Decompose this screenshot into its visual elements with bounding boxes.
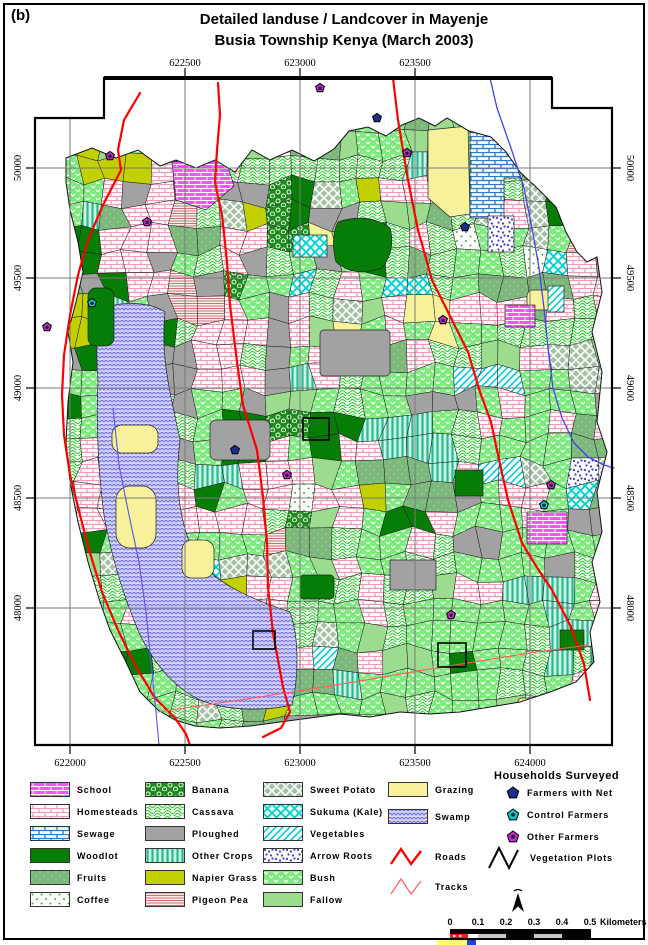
landuse-parcel	[596, 133, 617, 156]
landuse-parcel	[240, 128, 270, 158]
landuse-parcel	[57, 719, 81, 739]
landuse-parcel	[496, 668, 525, 700]
landuse-parcel	[80, 667, 101, 692]
landuse-map: 622500 623000 623500 622000 622500 62300…	[0, 0, 648, 945]
landuse-parcel	[55, 368, 82, 397]
landuse-parcel	[431, 620, 451, 653]
household-marker-center	[285, 474, 288, 477]
landuse-parcel	[127, 719, 153, 739]
landuse-parcel	[592, 533, 613, 559]
landuse-parcel	[54, 647, 79, 667]
landuse-parcel	[54, 418, 81, 439]
ploughed-area	[320, 330, 390, 376]
axis-label-right: 50000	[624, 155, 635, 181]
landuse-parcel	[74, 652, 99, 676]
landuse-parcel	[285, 106, 311, 136]
landuse-parcel	[267, 110, 285, 129]
school-area	[527, 512, 567, 544]
figure-label: (b)	[11, 7, 30, 24]
axis-label-bottom: 622500	[169, 758, 201, 769]
landuse-parcel	[27, 555, 55, 578]
household-marker-center	[549, 484, 552, 487]
household-marker-center	[441, 319, 444, 322]
grazing-patch	[116, 486, 156, 548]
landuse-parcel	[216, 134, 243, 158]
woodlot-area	[300, 575, 334, 599]
landuse-parcel	[546, 177, 577, 203]
landuse-parcel	[450, 670, 478, 700]
ploughed-area	[390, 560, 436, 590]
landuse-parcel	[149, 716, 174, 745]
landuse-parcel	[28, 365, 56, 394]
axis-label-bottom: 624000	[514, 758, 546, 769]
landuse-parcel	[525, 624, 551, 651]
landuse-parcel	[310, 182, 342, 209]
landuse-parcel	[546, 201, 577, 225]
landuse-parcel	[288, 457, 315, 484]
landuse-parcel	[357, 651, 383, 675]
axis-label-right: 48000	[624, 595, 635, 621]
landuse-parcel	[356, 178, 381, 202]
landuse-parcel	[546, 318, 575, 345]
landuse-parcel	[27, 319, 57, 348]
landuse-parcel	[30, 620, 55, 648]
landuse-parcel	[568, 129, 596, 158]
landuse-parcel	[595, 203, 622, 226]
landuse-parcel	[51, 506, 77, 535]
axis-label-top: 623500	[399, 58, 431, 69]
landuse-parcel	[567, 181, 600, 206]
landuse-parcel	[589, 601, 622, 630]
landuse-parcel	[591, 621, 622, 647]
landuse-parcel	[591, 667, 619, 698]
vegetables-area	[548, 286, 564, 312]
landuse-parcel	[596, 557, 622, 583]
household-marker-center	[405, 152, 408, 155]
landuse-parcel	[28, 201, 58, 231]
landuse-parcel	[566, 223, 595, 253]
ploughed-area	[210, 420, 270, 460]
landuse-parcel	[28, 390, 55, 419]
axis-label-left: 49500	[13, 265, 24, 291]
landuse-parcel	[78, 600, 104, 623]
landuse-parcel	[403, 294, 435, 323]
landuse-parcel	[238, 721, 272, 744]
landuse-parcel	[333, 299, 363, 325]
landuse-parcel	[101, 691, 128, 721]
landuse-parcel	[593, 295, 621, 322]
axis-label-left: 49000	[13, 375, 24, 401]
landuse-parcel	[29, 152, 60, 175]
landuse-parcel	[339, 713, 359, 747]
landuse-parcel	[571, 105, 598, 134]
landuse-parcel	[309, 434, 342, 462]
axis-label-left: 48000	[13, 595, 24, 621]
landuse-parcel	[74, 620, 103, 652]
landuse-parcel	[313, 669, 335, 695]
landuse-parcel	[267, 128, 291, 158]
axis-label-bottom: 623000	[284, 758, 316, 769]
landuse-parcel	[378, 437, 406, 460]
landuse-parcel	[480, 714, 500, 747]
landuse-parcel	[596, 153, 618, 184]
landuse-parcel	[28, 416, 56, 439]
household-marker-net	[373, 113, 382, 121]
landuse-parcel	[548, 109, 571, 136]
landuse-parcel	[75, 691, 103, 724]
landuse-parcel	[28, 269, 58, 297]
landuse-parcel	[482, 340, 498, 369]
landuse-parcel	[548, 129, 571, 161]
household-marker-center	[449, 614, 452, 617]
landuse-parcel	[148, 130, 177, 158]
landuse-parcel	[240, 110, 267, 136]
landuse-parcel	[98, 651, 128, 675]
landuse-parcel	[425, 481, 458, 512]
landuse-parcel	[358, 573, 384, 602]
landuse-parcel	[520, 345, 552, 371]
grazing-patch	[182, 540, 214, 578]
landuse-parcel	[546, 697, 571, 723]
landuse-parcel	[591, 690, 621, 722]
landuse-parcel	[51, 575, 82, 600]
landuse-parcel	[544, 675, 573, 699]
landuse-parcel	[566, 252, 597, 277]
landuse-parcel	[310, 106, 341, 136]
landuse-parcel	[56, 128, 78, 157]
axis-label-left: 48500	[13, 485, 24, 511]
landuse-parcel	[498, 714, 528, 742]
landuse-parcel	[576, 202, 600, 225]
landuse-parcel	[197, 719, 222, 741]
landuse-parcel	[453, 249, 481, 278]
woodlot-area	[333, 218, 391, 272]
landuse-parcel	[591, 319, 622, 345]
landuse-parcel	[473, 648, 502, 670]
landuse-parcel	[36, 717, 61, 743]
landuse-parcel	[27, 535, 55, 557]
landuse-parcel	[522, 154, 553, 181]
landuse-parcel	[58, 251, 77, 277]
woodlot-area	[88, 288, 114, 346]
landuse-parcel	[433, 362, 455, 395]
landuse-parcel	[244, 318, 269, 346]
landuse-parcel	[51, 553, 82, 577]
landuse-parcel	[428, 106, 454, 131]
grazing-patch	[518, 698, 544, 710]
household-marker-center	[318, 87, 321, 90]
landuse-parcel	[239, 462, 269, 490]
landuse-parcel	[30, 600, 56, 621]
household-marker-center	[542, 504, 545, 507]
landuse-parcel	[595, 223, 623, 252]
landuse-parcel	[313, 713, 342, 746]
axis-label-top: 623000	[284, 58, 316, 69]
landuse-parcel	[498, 648, 527, 670]
landuse-parcel	[51, 600, 83, 621]
landuse-parcel	[222, 110, 245, 136]
landuse-parcel	[173, 130, 196, 158]
household-marker-center	[90, 302, 93, 305]
landuse-parcel	[309, 528, 332, 560]
landuse-parcel	[265, 346, 291, 371]
landuse-parcel	[593, 716, 621, 743]
landuse-parcel	[34, 438, 57, 461]
household-marker-center	[145, 221, 148, 224]
landuse-parcel	[125, 135, 152, 154]
landuse-parcel	[28, 346, 57, 368]
landuse-parcel	[410, 723, 430, 742]
landuse-parcel	[570, 697, 596, 723]
landuse-parcel	[355, 460, 385, 485]
landuse-parcel	[54, 107, 78, 134]
household-marker-center	[108, 155, 111, 158]
landuse-parcel	[567, 153, 597, 184]
landuse-parcel	[99, 675, 129, 690]
landuse-parcel	[568, 366, 599, 394]
landuse-parcel	[99, 719, 128, 741]
landuse-parcel	[75, 721, 103, 741]
landuse-parcel	[451, 715, 481, 747]
household-marker-center	[45, 326, 48, 329]
axis-label-right: 48500	[624, 485, 635, 511]
landuse-parcel	[382, 277, 408, 297]
landuse-parcel	[496, 106, 522, 137]
landuse-parcel	[596, 105, 621, 134]
landuse-parcel	[355, 714, 386, 747]
landuse-parcel	[147, 108, 173, 135]
landuse-parcel	[27, 297, 57, 323]
sukuma-area	[293, 235, 327, 257]
landuse-parcel	[33, 457, 61, 488]
woodlot-area	[455, 470, 483, 496]
landuse-parcel	[384, 456, 411, 484]
axis-label-right: 49000	[624, 375, 635, 401]
arrow-roots-area	[488, 216, 514, 252]
landuse-parcel	[35, 575, 56, 601]
map-title-line2: Busia Township Kenya (March 2003)	[70, 30, 618, 51]
axis-label-right: 49500	[624, 265, 635, 291]
axis-label-left: 50000	[13, 155, 24, 181]
landuse-parcel	[521, 134, 549, 162]
landuse-parcel	[78, 576, 104, 603]
map-title: Detailed landuse / Landcover in Mayenje …	[70, 9, 618, 51]
landuse-parcel	[285, 511, 311, 528]
landuse-parcel	[51, 534, 78, 557]
landuse-parcel	[33, 249, 58, 276]
landuse-parcel	[549, 158, 568, 182]
landuse-parcel	[596, 182, 623, 207]
grazing-patch	[112, 425, 158, 453]
landuse-parcel	[51, 620, 83, 652]
landuse-parcel	[599, 456, 616, 485]
axis-label-top: 622500	[169, 58, 201, 69]
landuse-parcel	[170, 108, 198, 134]
landuse-parcel	[426, 722, 453, 740]
landuse-parcel	[545, 722, 571, 744]
map-title-line1: Detailed landuse / Landcover in Mayenje	[70, 9, 618, 30]
landuse-parcel	[356, 111, 388, 133]
axis-label-bottom: 622000	[54, 758, 86, 769]
landuse-parcel	[591, 646, 619, 673]
landuse-parcel	[315, 158, 340, 182]
landuse-parcel	[28, 107, 56, 134]
landuse-parcel	[472, 106, 501, 137]
landuse-parcel	[333, 111, 360, 131]
axis-label-bottom: 623500	[399, 758, 431, 769]
landuse-parcel	[386, 714, 410, 743]
landuse-parcel	[450, 106, 480, 130]
landuse-parcel	[265, 368, 291, 396]
landuse-parcel	[54, 293, 83, 318]
grazing-patch	[428, 126, 470, 217]
landuse-parcel	[542, 577, 574, 604]
landuse-parcel	[431, 651, 450, 677]
landuse-parcel	[28, 130, 57, 157]
landuse-parcel	[521, 112, 554, 136]
landuse-parcel	[28, 175, 61, 208]
landuse-parcel	[567, 716, 596, 741]
